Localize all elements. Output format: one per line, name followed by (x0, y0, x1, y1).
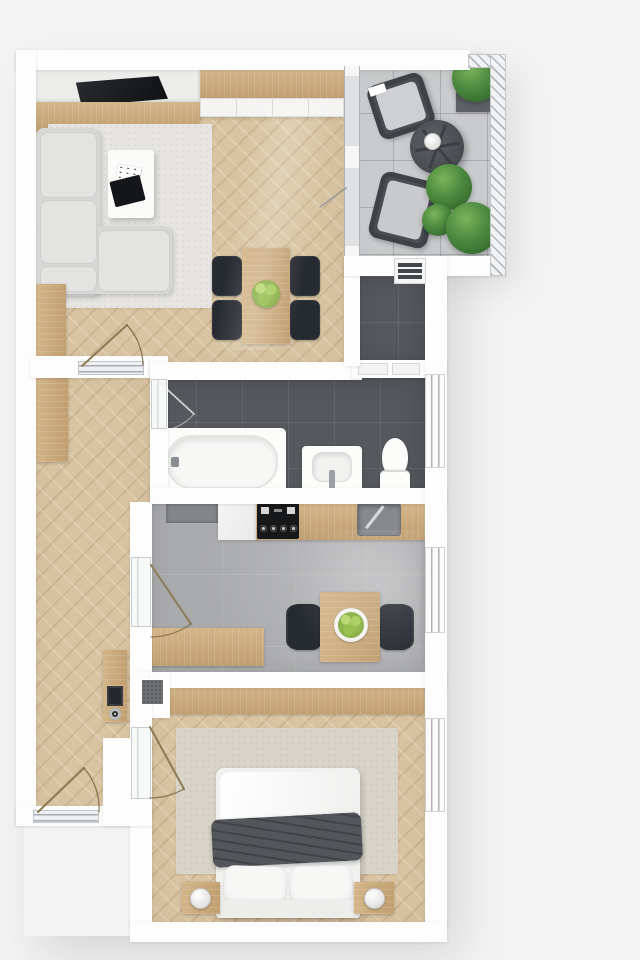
storage-door-panel (392, 363, 420, 375)
kitchen-window (425, 547, 445, 633)
doormat (142, 680, 163, 704)
sofa-cushion (40, 132, 97, 198)
radiator-slat (398, 269, 422, 273)
kitchen-chair (288, 604, 322, 650)
radiator (394, 258, 426, 284)
sofa-chaise-cushion (98, 230, 170, 292)
cooktop-knob (260, 525, 267, 532)
dining-chair (212, 300, 242, 340)
cooktop-knob (270, 525, 277, 532)
storage-room-floor (352, 276, 425, 364)
kitchen-bench (148, 628, 264, 666)
radiator-slat (398, 263, 422, 267)
pillow (290, 865, 353, 904)
sofa-cushion (40, 200, 97, 264)
radiator-slat (398, 275, 422, 279)
kitchen-sink (357, 503, 401, 536)
sideboard-doors (200, 98, 344, 117)
entrance-door-threshold (33, 810, 99, 823)
nightstand-lamp (364, 888, 385, 909)
washbasin (302, 446, 362, 492)
glass-door-mullion (345, 146, 359, 168)
bathtub-faucet (171, 457, 179, 467)
dining-chair (290, 256, 320, 296)
headboard (216, 900, 360, 918)
glass-door-mullion (345, 246, 359, 256)
left-wall (16, 50, 36, 824)
hallway-wardrobe (36, 284, 66, 364)
cooktop-knob (290, 525, 297, 532)
intercom (107, 686, 123, 706)
bathroom-door-panel (151, 379, 167, 429)
lounge-cushion (376, 179, 431, 240)
apples (338, 612, 364, 638)
dining-chair (290, 300, 320, 340)
hallway-console (103, 650, 127, 722)
living-door-threshold (78, 361, 144, 375)
kitchen-bedroom-wall (130, 672, 447, 688)
intercom-knob (109, 708, 121, 720)
bathtub-basin (166, 435, 278, 489)
sink-faucet (365, 505, 384, 529)
storage-door-panel (358, 363, 388, 375)
cooktop-display (287, 507, 295, 514)
sideboard-top (200, 70, 344, 98)
fruit-plate (334, 608, 368, 642)
kitchen-chair (378, 604, 412, 650)
toilet (380, 438, 410, 494)
glass-door-mullion (345, 66, 359, 76)
bedroom-wardrobe (168, 684, 424, 714)
table-sphere-lamp (424, 133, 441, 150)
cooktop (257, 503, 299, 539)
duvet (211, 812, 363, 868)
fruit-bowl (252, 280, 280, 308)
nightstand-lamp (190, 888, 211, 909)
floor-plan-canvas (0, 0, 640, 960)
cooktop-display (274, 509, 282, 512)
cooktop-display (261, 507, 269, 514)
hallway-wardrobe (34, 378, 68, 462)
cooktop-knob (280, 525, 287, 532)
kitchen-cabinet-white (218, 502, 258, 540)
bedroom-bottom-wall (130, 922, 447, 942)
dining-chair (212, 256, 242, 296)
bathtub (158, 428, 286, 496)
bedroom-door-panel (131, 727, 151, 799)
top-wall (16, 50, 470, 70)
bathroom-top-wall (150, 362, 362, 380)
kitchen-appliance (166, 503, 218, 523)
balcony-right-balustrade (490, 54, 506, 276)
bath-kitchen-wall (150, 488, 447, 504)
kitchen-door-panel (131, 557, 151, 627)
balcony-glass-door (344, 66, 360, 256)
bedroom-window (425, 718, 445, 812)
bathroom-window (425, 374, 445, 468)
